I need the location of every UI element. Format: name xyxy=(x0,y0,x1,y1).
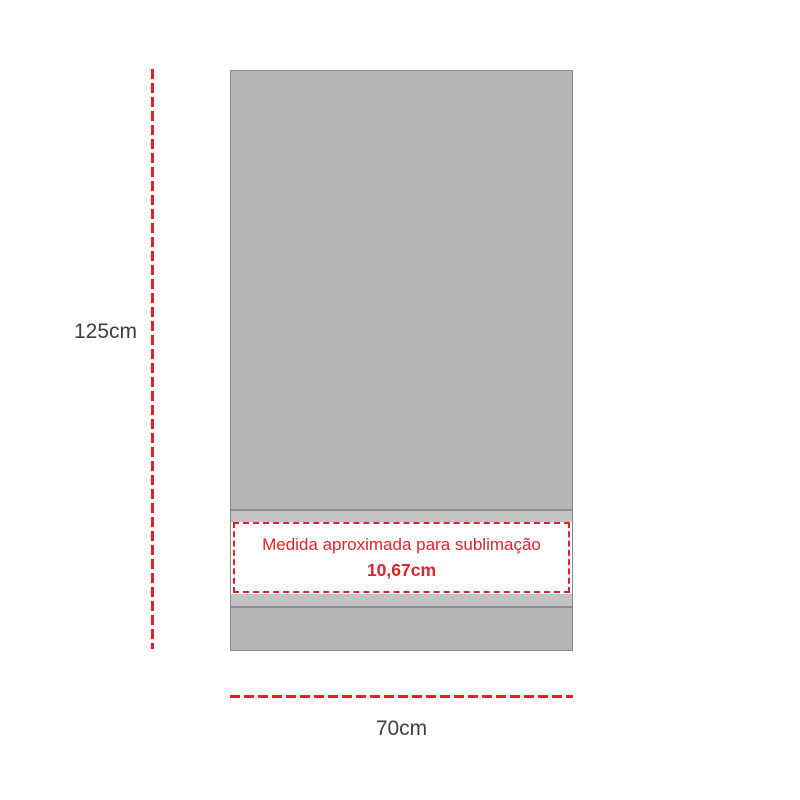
towel-body xyxy=(231,71,572,509)
width-measure-line xyxy=(230,695,573,698)
towel-hem xyxy=(231,608,572,650)
sublimation-measure: 10,67cm xyxy=(367,562,436,580)
diagram-canvas: Medida aproximada para sublimação 10,67c… xyxy=(0,0,800,800)
towel: Medida aproximada para sublimação 10,67c… xyxy=(230,70,573,651)
trim-strip-bottom xyxy=(231,594,572,606)
width-label: 70cm xyxy=(230,718,573,739)
sublimation-note: Medida aproximada para sublimação xyxy=(262,536,541,553)
sublimation-dashed-border: Medida aproximada para sublimação 10,67c… xyxy=(233,522,570,593)
height-measure-line xyxy=(151,69,154,649)
height-label: 125cm xyxy=(37,321,137,342)
sublimation-band: Medida aproximada para sublimação 10,67c… xyxy=(231,522,572,594)
trim-strip-top xyxy=(231,511,572,522)
